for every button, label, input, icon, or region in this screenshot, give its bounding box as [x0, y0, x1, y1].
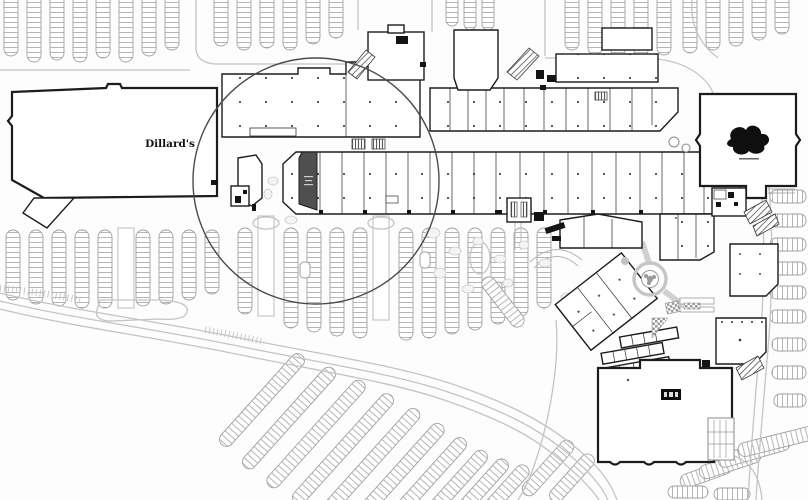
mall-site-plan: Dillard's	[0, 0, 808, 500]
mall-east-wing	[660, 214, 714, 260]
parking-lot-top-left	[4, 0, 179, 62]
highlighted-store	[299, 152, 317, 210]
dillards-building	[8, 84, 218, 228]
mid-south-building	[545, 214, 642, 248]
outparcel-buildings	[348, 25, 498, 90]
parking-lot-top-middle	[214, 0, 494, 50]
dillards-label: Dillard's	[145, 138, 195, 150]
corridor-skylights	[352, 139, 385, 149]
mall-west-cluster	[231, 155, 262, 211]
parking-lot-center	[238, 216, 551, 340]
bottom-right-anchor	[598, 360, 734, 465]
parking-lot-top-right	[565, 0, 789, 57]
lifestyle-rotated-building	[555, 253, 678, 377]
site-plan-canvas: Dillard's	[0, 0, 808, 500]
parking-lot-left-mid	[6, 228, 219, 308]
bottom-anchor-logo	[661, 389, 681, 400]
